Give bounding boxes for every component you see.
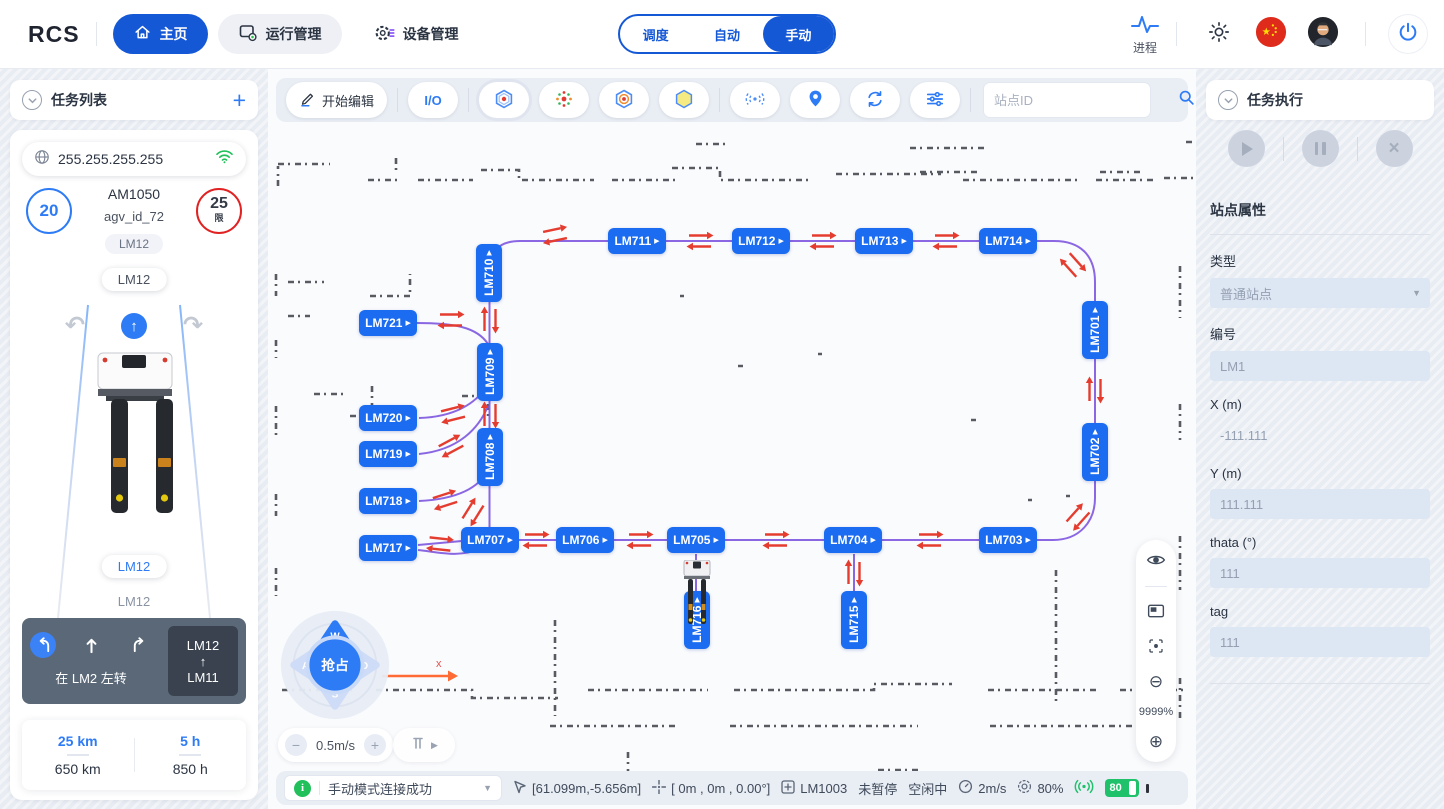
route-arrow-icon: ↑ — [200, 654, 207, 669]
signal-icon — [1074, 779, 1094, 797]
battery-indicator: 80 — [1105, 779, 1149, 797]
task-cancel-button[interactable]: × — [1376, 130, 1413, 167]
start-edit-button[interactable]: 开始编辑 — [286, 82, 387, 118]
add-task-button[interactable]: + — [233, 90, 246, 110]
top-bar: RCS 主页 运行管理 设备管理 调度 自动 手动 进程 ★ — [0, 0, 1444, 68]
joystick[interactable]: W A D S 抢占 — [276, 606, 394, 729]
cursor-icon — [513, 780, 527, 797]
properties-title: 站点属性 — [1210, 200, 1430, 220]
nav-device-label: 设备管理 — [403, 24, 459, 44]
nav-hint: 在 LM2 左转 — [22, 668, 160, 687]
map-toolbar: 开始编辑 I/O — [276, 78, 1188, 122]
station-LM719[interactable]: LM719 ▶ — [359, 441, 417, 467]
nav-turn-left-icon — [30, 632, 56, 658]
pencil-icon — [299, 90, 316, 110]
power-icon — [1397, 21, 1419, 48]
refresh-button[interactable] — [850, 82, 900, 118]
process-button[interactable]: 进程 — [1130, 13, 1160, 56]
left-sidebar: 任务列表 + 255.255.255.255 20 25限 AM1050 agv… — [0, 68, 268, 809]
hexagon-dot-icon — [493, 88, 515, 113]
map-view-controls: ⊖ 9999% ⊕ — [1136, 540, 1176, 762]
fork-control[interactable]: ▶ — [393, 728, 455, 762]
collapse-icon[interactable] — [1218, 90, 1238, 110]
play-icon — [1242, 142, 1253, 156]
divider — [1176, 22, 1177, 46]
nav-straight-icon — [78, 632, 104, 658]
nav-device[interactable]: 设备管理 — [354, 14, 479, 54]
target-icon — [1017, 779, 1032, 797]
stat-distance-today: 25 km — [22, 733, 134, 749]
field-type-select[interactable]: 普通站点 ▼ — [1210, 278, 1430, 308]
station-LM705[interactable]: LM705 ▶ — [667, 527, 725, 553]
station-search-input[interactable] — [994, 93, 1170, 108]
station-LM720[interactable]: LM720 ▶ — [359, 405, 417, 431]
station-pill-1: LM12 — [105, 234, 163, 254]
focus-icon[interactable] — [1147, 637, 1165, 658]
station-LM707[interactable]: LM707 ▶ — [461, 527, 519, 553]
field-type-label: 类型 — [1210, 251, 1430, 270]
vehicle-card: 255.255.255.255 20 25限 AM1050 agv_id_72 … — [10, 130, 258, 800]
route-from: LM12 — [187, 638, 220, 653]
locate-pin-button[interactable] — [790, 82, 840, 118]
field-y-input[interactable]: 111.111 — [1210, 489, 1430, 519]
vehicle-ip: 255.255.255.255 — [58, 151, 207, 167]
nav-operation[interactable]: 运行管理 — [218, 14, 342, 54]
plus-square-icon — [781, 780, 795, 797]
home-icon — [133, 23, 152, 45]
route-to: LM11 — [187, 670, 219, 685]
io-button[interactable]: I/O — [408, 82, 458, 118]
stat-hours-total: 850 h — [135, 761, 247, 777]
status-coords: [61.099m,-5.656m] — [513, 780, 641, 797]
info-icon: i — [294, 780, 311, 797]
station-LM715[interactable]: LM715 ▶ — [841, 591, 867, 649]
nav-turn-right-icon — [126, 632, 152, 658]
speed-control: − 0.5m/s + — [278, 728, 393, 762]
mode-switch: 调度 自动 手动 — [618, 14, 836, 54]
search-icon[interactable] — [1178, 89, 1195, 111]
tab-dispatch[interactable]: 调度 — [620, 16, 691, 52]
task-controls: × — [1196, 130, 1444, 167]
svg-text:★: ★ — [1262, 26, 1271, 37]
speed-value: 0.5m/s — [316, 738, 355, 753]
station-LM711[interactable]: LM711 ▶ — [608, 228, 666, 254]
station-LM709[interactable]: LM709 ▶ — [477, 343, 503, 401]
stat-distance-total: 650 km — [22, 761, 134, 777]
layer-station-button[interactable] — [479, 82, 529, 118]
hexagon-ring-icon — [613, 88, 635, 113]
vehicle-model: AM1050 — [10, 186, 258, 202]
station-LM708[interactable]: LM708 ▶ — [477, 428, 503, 486]
hexagon-yellow-icon — [673, 88, 695, 113]
user-avatar[interactable] — [1304, 15, 1342, 53]
stat-hours-today: 5 h — [135, 733, 247, 749]
sliders-icon — [925, 89, 945, 112]
route-box: LM12 ↑ LM11 — [168, 626, 238, 696]
task-pause-button[interactable] — [1302, 130, 1339, 167]
speed-increase-button[interactable]: + — [364, 734, 386, 756]
field-theta-input[interactable]: 111 — [1210, 558, 1430, 588]
avatar-image — [1307, 16, 1339, 53]
minimap-icon[interactable] — [1147, 603, 1165, 622]
process-label: 进程 — [1133, 39, 1157, 56]
status-state: 空闲中 — [908, 779, 947, 798]
task-exec-header: 任务执行 — [1206, 80, 1434, 120]
zoom-percent: 9999% — [1139, 706, 1173, 718]
pulse-icon — [1130, 13, 1160, 38]
svg-text:x: x — [436, 658, 442, 670]
crosshair-icon — [652, 780, 666, 797]
start-edit-label: 开始编辑 — [322, 91, 374, 110]
navigation-panel: 在 LM2 左转 LM12 ↑ LM11 — [22, 618, 246, 704]
station-LM714[interactable]: LM714 ▶ — [979, 228, 1037, 254]
nav-operation-label: 运行管理 — [266, 24, 322, 44]
radar-icon — [744, 88, 766, 113]
visibility-eye-icon[interactable] — [1146, 552, 1166, 571]
divider — [1365, 22, 1366, 46]
status-message: 手动模式连接成功 — [328, 779, 475, 798]
message-caret-icon[interactable]: ▼ — [483, 783, 492, 793]
vehicle-agv-id: agv_id_72 — [10, 209, 258, 224]
field-x-value: -111.111 — [1210, 420, 1430, 450]
layer-target-button[interactable] — [599, 82, 649, 118]
filter-sliders-button[interactable] — [910, 82, 960, 118]
field-theta-label: thata (°) — [1210, 535, 1430, 550]
language-button[interactable]: ★ — [1252, 15, 1290, 53]
station-LM717[interactable]: LM717 ▶ — [359, 535, 417, 561]
station-LM706[interactable]: LM706 ▶ — [556, 527, 614, 553]
station-LM701[interactable]: LM701 ▶ — [1082, 301, 1108, 359]
status-percent: 80% — [1017, 779, 1063, 797]
station-LM703[interactable]: LM703 ▶ — [979, 527, 1037, 553]
field-number-input[interactable]: LM1 — [1210, 351, 1430, 381]
station-LM721[interactable]: LM721 ▶ — [359, 310, 417, 336]
zoom-in-button[interactable]: ⊕ — [1149, 733, 1163, 750]
map-area[interactable]: 开始编辑 I/O — [268, 68, 1196, 809]
task-list-header: 任务列表 + — [10, 80, 258, 120]
china-flag-icon: ★ — [1255, 16, 1287, 53]
location-pin-icon — [806, 89, 825, 111]
app-logo: RCS — [28, 21, 80, 48]
station-pill-3: LM12 — [102, 555, 167, 578]
vehicle-stats: 25 km 650 km 5 h 850 h — [22, 720, 246, 790]
tab-manual[interactable]: 手动 — [763, 16, 834, 52]
pause-icon — [1315, 142, 1326, 155]
fork-icon — [410, 735, 426, 756]
speed-decrease-button[interactable]: − — [285, 734, 307, 756]
globe-icon — [34, 149, 50, 170]
station-properties: 站点属性 类型 普通站点 ▼ 编号 LM1 X (m) -111.111 Y (… — [1210, 200, 1430, 686]
agv-vehicle-marker[interactable] — [683, 560, 711, 633]
station-layer: LM710 ▶LM711 ▶LM712 ▶LM713 ▶LM714 ▶LM701… — [268, 68, 1196, 809]
layer-points-button[interactable] — [539, 82, 589, 118]
station-search — [983, 82, 1151, 118]
svg-text:抢占: 抢占 — [321, 657, 349, 673]
layer-zone-button[interactable] — [659, 82, 709, 118]
monitor-gear-icon — [238, 23, 258, 46]
station-LM710[interactable]: LM710 ▶ — [476, 244, 502, 302]
power-button[interactable] — [1389, 15, 1427, 53]
battery-icon: 80 — [1105, 779, 1139, 797]
station-LM704[interactable]: LM704 ▶ — [824, 527, 882, 553]
station-LM712[interactable]: LM712 ▶ — [732, 228, 790, 254]
theme-button[interactable] — [1200, 15, 1238, 53]
close-icon: × — [1388, 139, 1399, 158]
fork-play-icon: ▶ — [431, 740, 438, 751]
wifi-icon — [215, 149, 234, 169]
refresh-icon — [865, 89, 885, 112]
collapse-icon[interactable] — [22, 90, 42, 110]
status-station: LM1003 — [781, 780, 847, 797]
station-LM718[interactable]: LM718 ▶ — [359, 488, 417, 514]
field-x-label: X (m) — [1210, 397, 1430, 412]
radar-button[interactable] — [730, 82, 780, 118]
vehicle-graphic — [10, 300, 258, 630]
right-sidebar: 任务执行 × 站点属性 类型 普通站点 ▼ 编号 LM1 X (m) -111.… — [1196, 68, 1444, 809]
task-list-title: 任务列表 — [51, 90, 224, 110]
task-play-button[interactable] — [1228, 130, 1265, 167]
divider — [96, 22, 97, 46]
field-tag-input[interactable]: 111 — [1210, 627, 1430, 657]
gear-icon — [374, 23, 395, 46]
status-message-pill[interactable]: i 手动模式连接成功 ▼ — [284, 775, 502, 801]
caret-down-icon: ▼ — [1412, 288, 1421, 298]
gauge-icon — [958, 779, 973, 797]
field-number-label: 编号 — [1210, 324, 1430, 343]
status-bar: i 手动模式连接成功 ▼ [61.099m,-5.656m] [ 0m , 0m… — [276, 771, 1188, 805]
sun-icon — [1208, 21, 1230, 48]
station-LM713[interactable]: LM713 ▶ — [855, 228, 913, 254]
nav-home-label: 主页 — [160, 24, 188, 44]
particles-icon — [553, 88, 575, 113]
nav-home[interactable]: 主页 — [113, 14, 208, 54]
tab-auto[interactable]: 自动 — [691, 16, 762, 52]
station-LM702[interactable]: LM702 ▶ — [1082, 423, 1108, 481]
zoom-out-button[interactable]: ⊖ — [1149, 673, 1163, 690]
station-pill-4: LM12 — [10, 594, 258, 609]
task-exec-title: 任务执行 — [1247, 90, 1422, 110]
status-speed: 2m/s — [958, 779, 1006, 797]
field-tag-label: tag — [1210, 604, 1430, 619]
status-pose: [ 0m , 0m , 0.00°] — [652, 780, 770, 797]
field-y-label: Y (m) — [1210, 466, 1430, 481]
vehicle-ip-row[interactable]: 255.255.255.255 — [22, 142, 246, 176]
status-pause: 未暂停 — [858, 779, 897, 798]
station-pill-2: LM12 — [102, 268, 167, 291]
